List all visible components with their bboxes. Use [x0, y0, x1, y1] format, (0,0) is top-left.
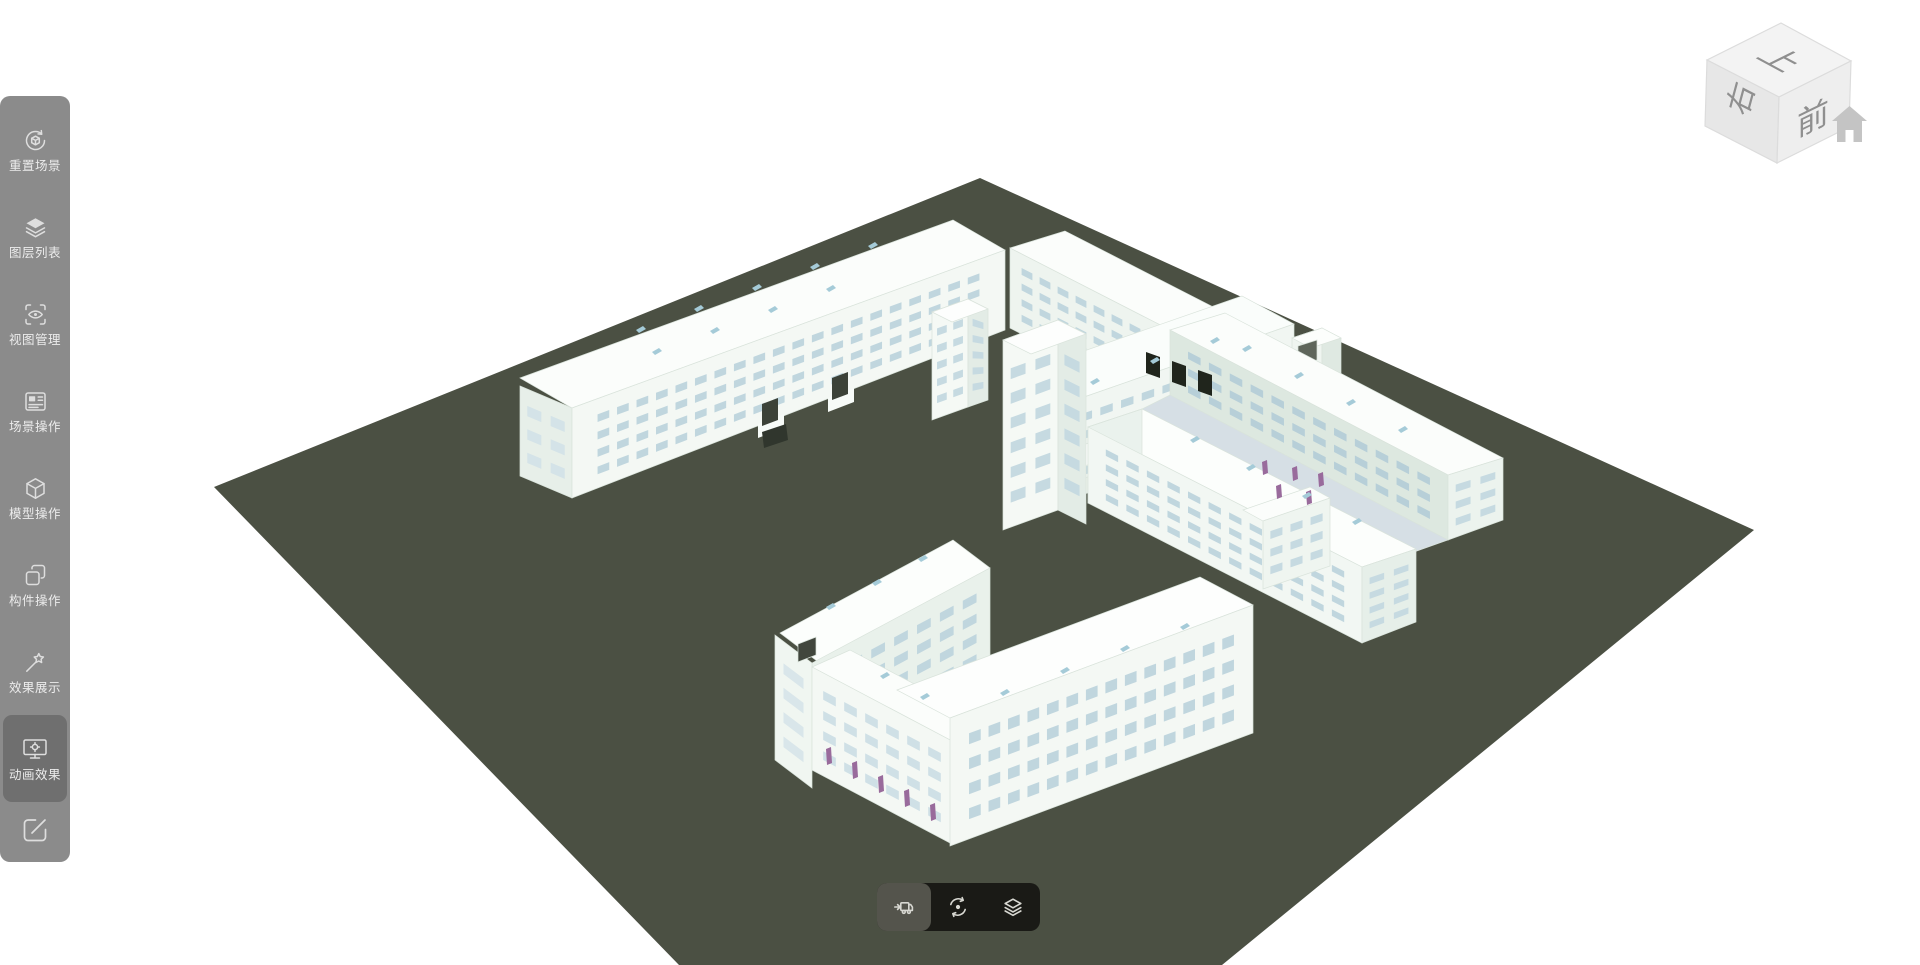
window [973, 367, 984, 375]
layers-icon [22, 214, 49, 241]
sidebar-item-layer-list[interactable]: 图层列表 [3, 193, 67, 280]
bottom-toolbar [877, 883, 1040, 931]
orbit-icon [946, 895, 970, 919]
door-figure [930, 803, 936, 821]
sidebar-item-label: 效果展示 [9, 682, 61, 695]
model-icon [22, 475, 49, 502]
figure [1318, 472, 1324, 487]
view-cube[interactable]: 上 右 前 [1705, 23, 1867, 163]
door-figure [852, 761, 858, 779]
sidebar-item-component-operations[interactable]: 构件操作 [3, 541, 67, 628]
layers-icon [1001, 895, 1025, 919]
scene-icon [22, 388, 49, 415]
reset-icon [22, 127, 49, 154]
effect-icon [22, 649, 49, 676]
scene-canvas[interactable]: 上 右 前 [0, 0, 1920, 965]
door-figure [826, 747, 832, 765]
figure [1276, 484, 1282, 499]
door-figure [904, 789, 910, 807]
walkthrough-mode-button[interactable] [877, 883, 931, 931]
sidebar-item-label: 视图管理 [9, 334, 61, 347]
window [973, 351, 984, 359]
sidebar-item-label: 图层列表 [9, 247, 61, 260]
layer-toggle-button[interactable] [986, 883, 1040, 931]
sidebar-item-view-management[interactable]: 视图管理 [3, 280, 67, 367]
edit-icon [20, 815, 50, 845]
sidebar-item-model-operations[interactable]: 模型操作 [3, 454, 67, 541]
sidebar-item-animation-effects[interactable]: 动画效果 [3, 715, 67, 802]
sidebar-item-label: 场景操作 [9, 421, 61, 434]
sidebar-item-edit[interactable] [3, 804, 67, 856]
door-figure [878, 775, 884, 793]
building-stair-tower-b-side[interactable] [1058, 320, 1086, 524]
viewer-viewport: 上 右 前 重置场景图层列表视图管理场景操作模型操作构件操作效果展示动画效果 [0, 0, 1920, 965]
tool-sidebar: 重置场景图层列表视图管理场景操作模型操作构件操作效果展示动画效果 [0, 96, 70, 862]
sidebar-item-label: 重置场景 [9, 160, 61, 173]
view-icon [22, 301, 49, 328]
sidebar-item-label: 构件操作 [9, 595, 61, 608]
sidebar-item-reset-scene[interactable]: 重置场景 [3, 106, 67, 193]
sidebar-item-scene-operations[interactable]: 场景操作 [3, 367, 67, 454]
orbit-mode-button[interactable] [931, 883, 985, 931]
sidebar-item-label: 模型操作 [9, 508, 61, 521]
sidebar-item-effect-display[interactable]: 效果展示 [3, 628, 67, 715]
figure [1262, 460, 1268, 475]
sidebar-item-label: 动画效果 [9, 769, 61, 782]
walkthrough-icon [892, 895, 916, 919]
animation-icon [21, 735, 49, 763]
figure [1292, 466, 1298, 481]
component-icon [22, 562, 49, 589]
